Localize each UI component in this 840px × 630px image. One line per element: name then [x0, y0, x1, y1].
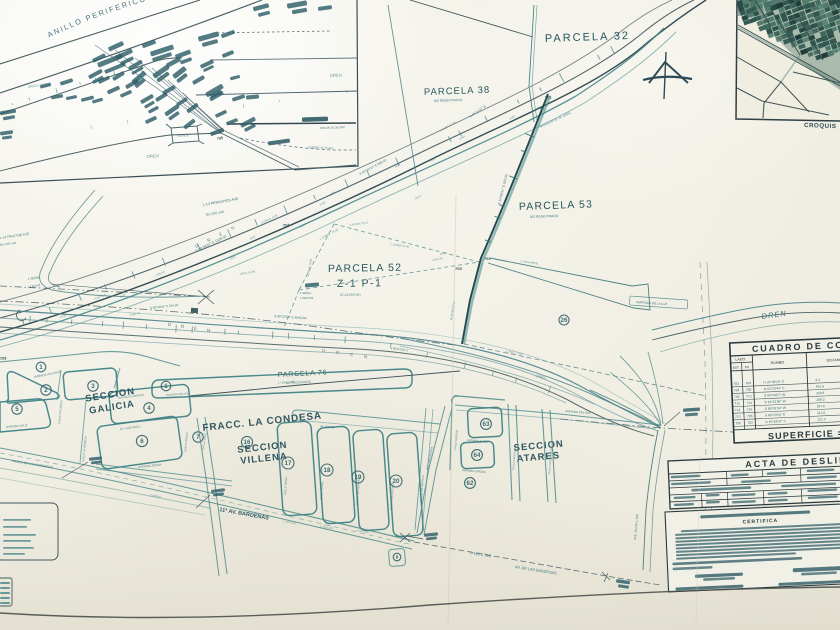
svg-text:239.8: 239.8 — [816, 391, 825, 395]
svg-text:64: 64 — [474, 452, 481, 459]
svg-text:LADO: LADO — [735, 357, 745, 361]
svg-text:62: 62 — [467, 480, 474, 487]
svg-text:715: 715 — [747, 407, 753, 411]
svg-text:3: 3 — [91, 383, 95, 390]
svg-text:704: 704 — [745, 381, 751, 385]
svg-text:5: 5 — [15, 406, 19, 413]
svg-text:6: 6 — [140, 438, 144, 445]
svg-text:705: 705 — [734, 395, 740, 399]
svg-text:714: 714 — [746, 401, 752, 405]
svg-text:1: 1 — [164, 383, 168, 390]
svg-text:9.4: 9.4 — [815, 378, 820, 382]
svg-text:PARCELA 52: PARCELA 52 — [328, 262, 402, 275]
svg-text:704: 704 — [283, 222, 291, 228]
svg-text:EST: EST — [733, 366, 739, 370]
svg-text:714: 714 — [735, 408, 741, 412]
svg-text:1: 1 — [39, 364, 43, 371]
svg-text:18: 18 — [324, 467, 331, 474]
svg-text:E: E — [350, 352, 354, 357]
svg-text:1 DESTRF: 1 DESTRF — [300, 296, 314, 300]
svg-text:RUMBO: RUMBO — [771, 361, 785, 366]
svg-text:705: 705 — [746, 388, 752, 392]
svg-text:703: 703 — [747, 421, 753, 425]
svg-text:PARCELA 38: PARCELA 38 — [424, 85, 491, 98]
svg-text:DREN: DREN — [330, 73, 342, 78]
svg-text:DISTANC: DISTANC — [826, 358, 840, 363]
svg-text:706: 706 — [735, 421, 741, 425]
svg-text:712: 712 — [746, 394, 752, 398]
svg-text:451.9: 451.9 — [816, 384, 825, 388]
svg-text:N: N — [364, 354, 368, 359]
svg-text:CROQUIS: CROQUIS — [804, 122, 837, 130]
svg-text:PUENTE: PUENTE — [177, 134, 189, 138]
svg-text:312.0: 312.0 — [817, 411, 826, 415]
svg-text:705: 705 — [455, 266, 462, 271]
svg-text:257.6: 257.6 — [817, 404, 826, 408]
svg-text:DREN: DREN — [147, 153, 159, 159]
svg-text:2: 2 — [44, 387, 48, 394]
svg-text:07-L3-052-001: 07-L3-052-001 — [340, 293, 361, 297]
svg-text:712: 712 — [734, 401, 740, 405]
svg-text:706: 706 — [747, 414, 753, 418]
svg-text:704: 704 — [734, 388, 740, 392]
svg-text:4: 4 — [147, 405, 151, 412]
svg-text:715: 715 — [735, 415, 741, 419]
svg-text:E: E — [194, 326, 197, 331]
svg-text:17: 17 — [285, 460, 292, 467]
svg-text:208.3: 208.3 — [816, 398, 825, 402]
svg-text:26: 26 — [561, 317, 568, 324]
svg-text:Z-1 P-1: Z-1 P-1 — [337, 277, 383, 290]
svg-text:703: 703 — [733, 382, 739, 386]
svg-text:N: N — [207, 328, 211, 333]
svg-text:1 SEÑAL: 1 SEÑAL — [300, 290, 312, 295]
svg-text:63: 63 — [483, 421, 490, 428]
svg-text:121.3: 121.3 — [817, 417, 826, 421]
